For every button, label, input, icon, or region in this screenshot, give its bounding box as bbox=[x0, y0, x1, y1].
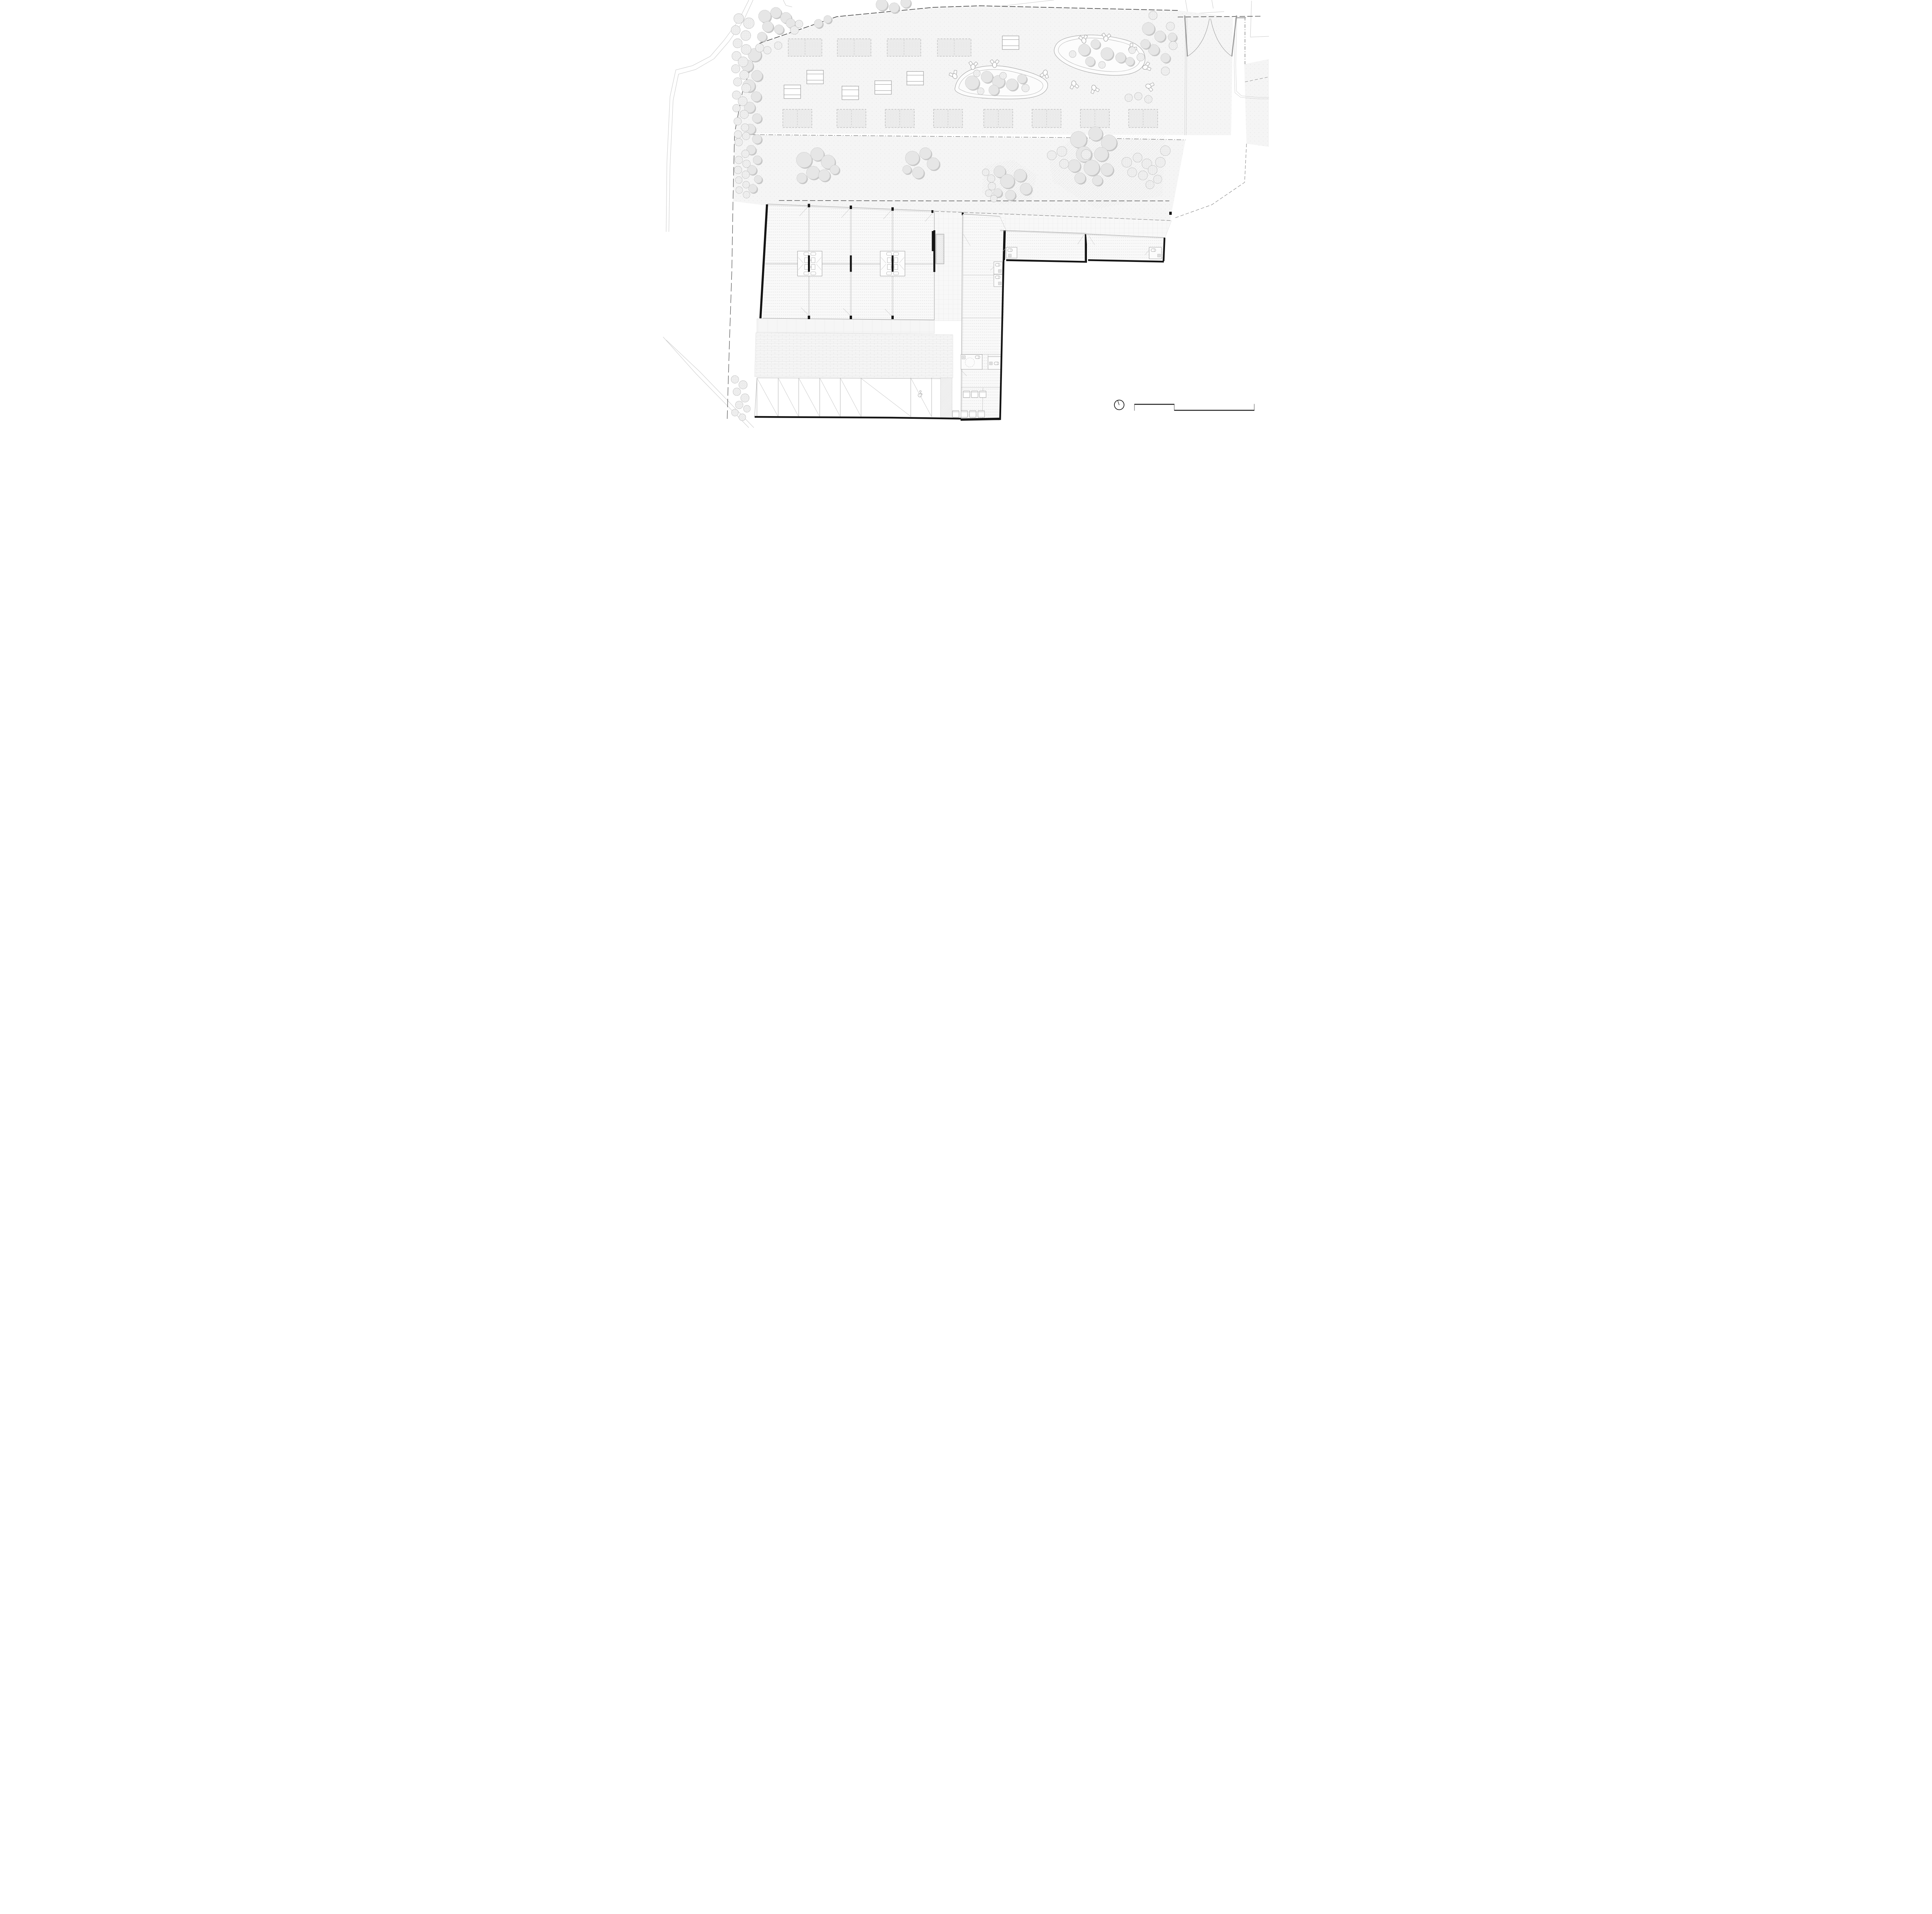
site-plan-canvas bbox=[663, 0, 1269, 428]
layer-neighbor-parcel bbox=[1244, 59, 1269, 147]
building-wing-north bbox=[1000, 230, 1087, 263]
site-plan-svg bbox=[663, 0, 1269, 428]
layer-map-symbols bbox=[1114, 400, 1254, 411]
building-middle bbox=[961, 214, 1006, 421]
building-left bbox=[760, 204, 964, 320]
scale-bar bbox=[1134, 404, 1254, 411]
layer-buildings bbox=[760, 204, 1172, 421]
north-arrow bbox=[1114, 400, 1124, 410]
